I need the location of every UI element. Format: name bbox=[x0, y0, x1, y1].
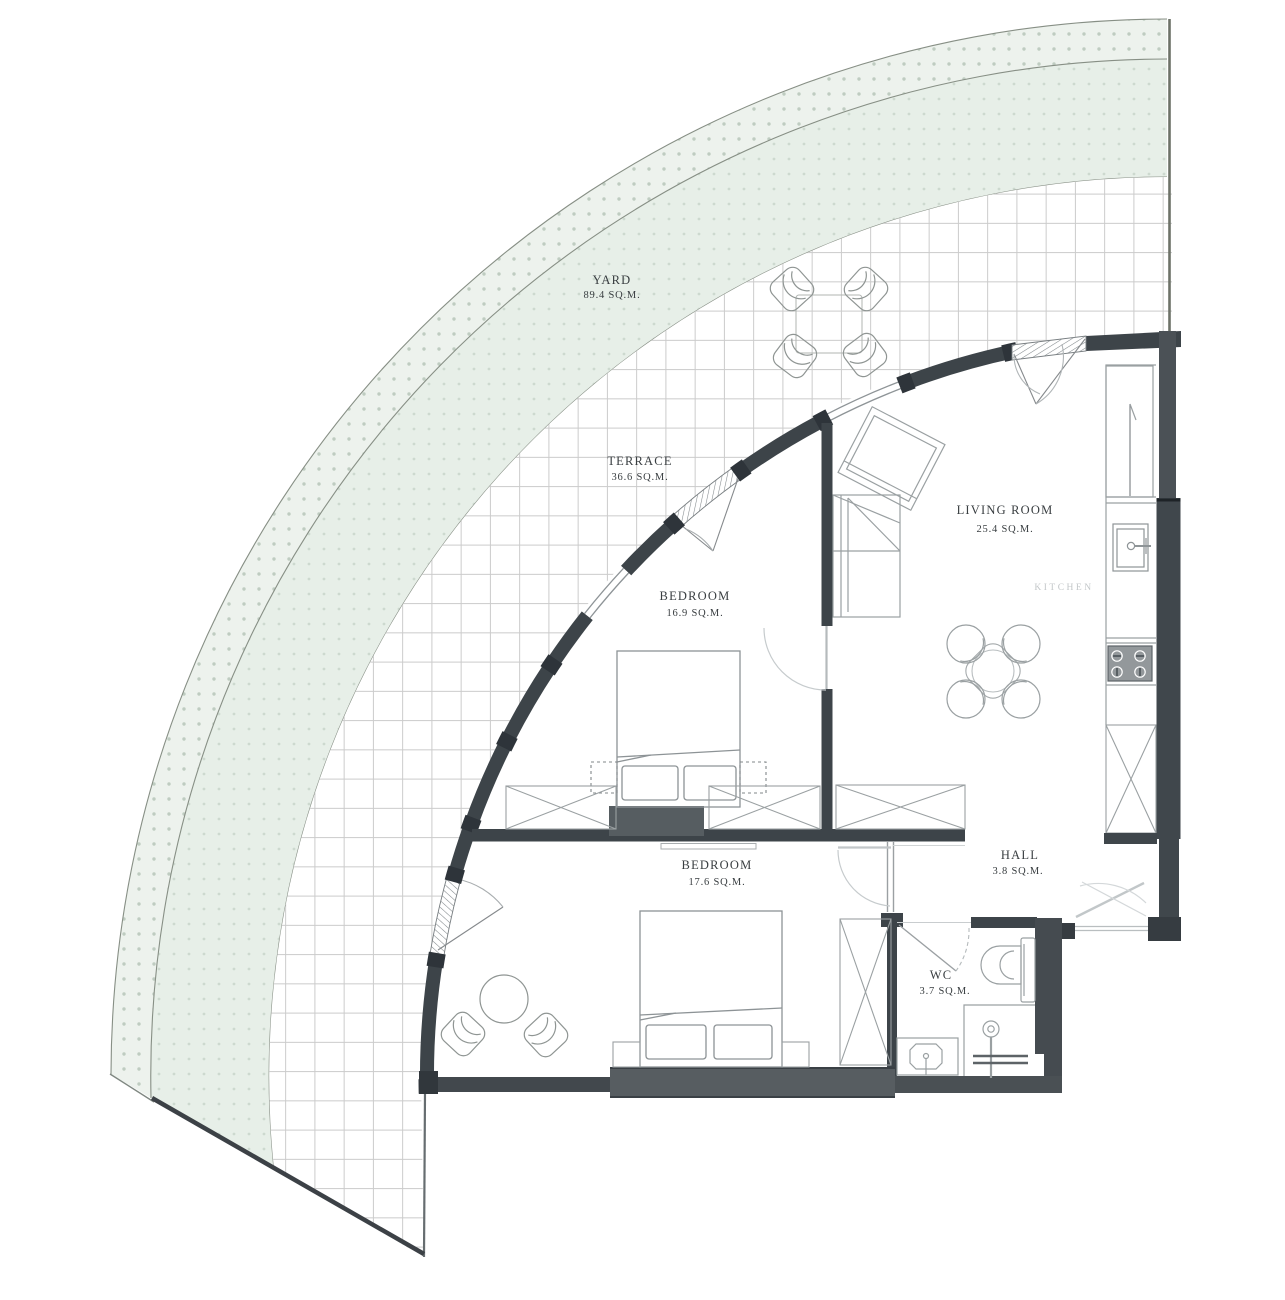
svg-text:3.7 SQ.M.: 3.7 SQ.M. bbox=[920, 986, 971, 997]
svg-text:25.4 SQ.M.: 25.4 SQ.M. bbox=[976, 524, 1033, 535]
svg-text:WC: WC bbox=[930, 968, 953, 982]
svg-text:LIVING ROOM: LIVING ROOM bbox=[957, 503, 1054, 517]
svg-text:89.4 SQ.M.: 89.4 SQ.M. bbox=[583, 290, 640, 301]
svg-text:BEDROOM: BEDROOM bbox=[660, 589, 731, 603]
svg-text:HALL: HALL bbox=[1001, 848, 1039, 862]
svg-text:17.6 SQ.M.: 17.6 SQ.M. bbox=[688, 877, 745, 888]
svg-text:BEDROOM: BEDROOM bbox=[682, 858, 753, 872]
svg-text:16.9 SQ.M.: 16.9 SQ.M. bbox=[666, 608, 723, 619]
svg-text:TERRACE: TERRACE bbox=[607, 454, 672, 468]
svg-text:3.8 SQ.M.: 3.8 SQ.M. bbox=[993, 866, 1044, 877]
svg-text:36.6 SQ.M.: 36.6 SQ.M. bbox=[611, 472, 668, 483]
svg-text:KITCHEN: KITCHEN bbox=[1034, 583, 1093, 593]
svg-text:YARD: YARD bbox=[593, 273, 632, 287]
